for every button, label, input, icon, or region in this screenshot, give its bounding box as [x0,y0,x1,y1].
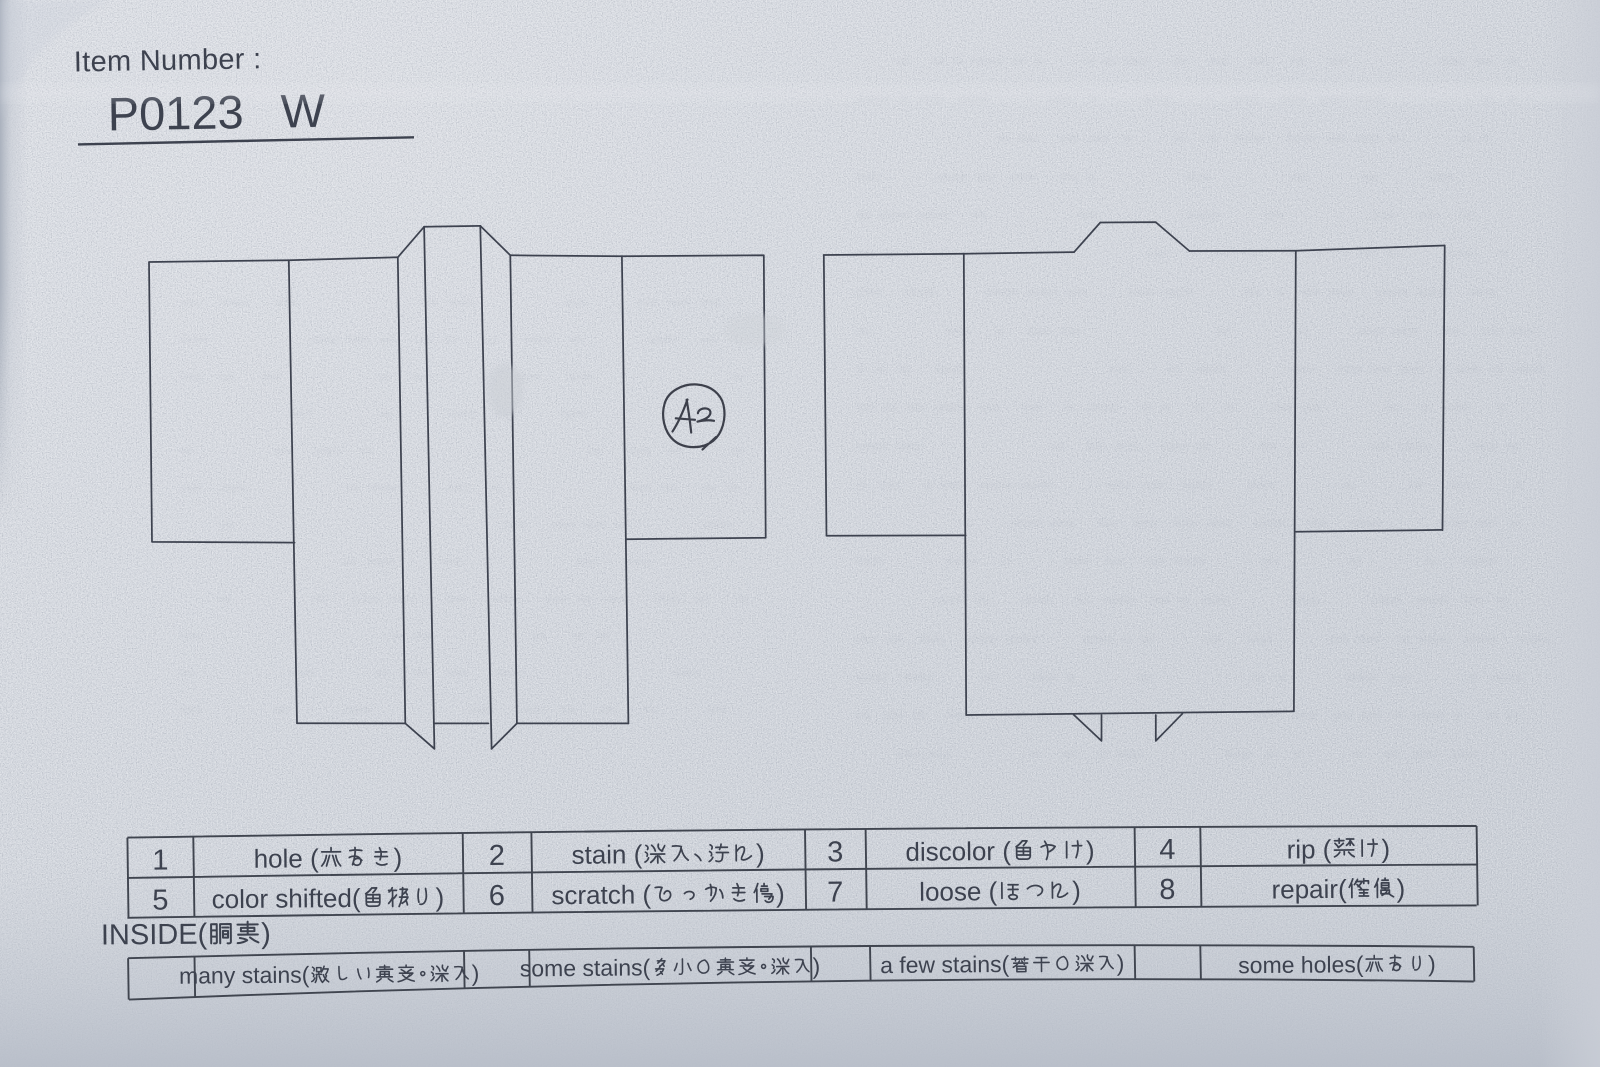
svg-text:): ) [1381,834,1390,864]
svg-text:stain (: stain ( [571,839,642,870]
svg-text:a few stains(: a few stains( [880,951,1010,978]
svg-text:): ) [812,953,820,979]
svg-text:discolor (: discolor ( [905,836,1011,867]
svg-text:hole (: hole ( [253,843,319,874]
svg-text:some holes(: some holes( [1238,951,1364,978]
svg-text:5: 5 [152,885,168,917]
svg-text:INSIDE(: INSIDE( [101,919,208,952]
svg-text:loose (: loose ( [919,876,998,907]
svg-text:): ) [1396,873,1405,903]
svg-text:some stains(: some stains( [520,954,651,981]
svg-text:): ) [1072,875,1081,905]
svg-text:6: 6 [489,880,505,912]
svg-text:3: 3 [827,836,843,868]
svg-text:): ) [1086,835,1095,865]
svg-text:): ) [756,838,765,868]
svg-text:Item Number :: Item Number : [74,43,262,78]
svg-text:): ) [393,842,402,872]
svg-text:): ) [1428,951,1436,977]
svg-text:1: 1 [152,844,168,876]
svg-text:color shifted(: color shifted( [212,883,361,914]
svg-text:scratch (: scratch ( [551,879,651,910]
svg-text:2: 2 [489,840,505,872]
svg-text:repair(: repair( [1271,874,1347,905]
svg-text:): ) [1117,950,1125,976]
svg-text:4: 4 [1159,834,1175,866]
svg-text:7: 7 [827,876,843,908]
svg-text:many stains(: many stains( [179,962,310,989]
svg-text:): ) [435,882,444,912]
svg-text:rip (: rip ( [1286,834,1331,864]
svg-text:): ) [261,918,271,950]
svg-text:): ) [472,960,480,986]
svg-text:): ) [776,878,785,908]
svg-text:8: 8 [1159,874,1175,906]
